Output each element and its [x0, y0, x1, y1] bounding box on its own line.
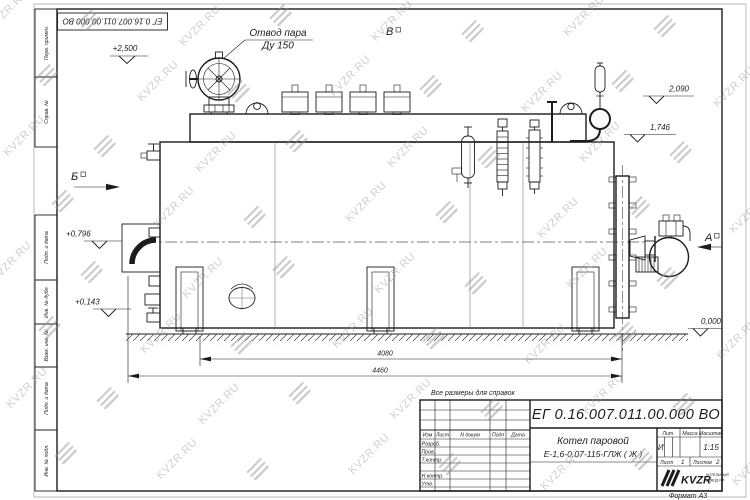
elevation-plus0143-label: +0,143: [75, 298, 100, 307]
lit-value: И: [658, 443, 664, 452]
margin-label-inv-podl: Инв. № подл.: [44, 444, 50, 476]
row-nkontr: Н.контр.: [422, 474, 444, 480]
view-a-label: А: [704, 232, 712, 244]
product-name: Котел паровой: [557, 436, 629, 447]
steam-note-line2: Ду 150: [261, 41, 294, 52]
mass-label: Масса: [682, 431, 697, 437]
elevation-plus0796-label: +0,796: [66, 230, 91, 239]
rear-flange-plate: [609, 165, 636, 352]
col-izm: Изм: [423, 433, 433, 439]
view-labels: Б В А: [71, 26, 722, 250]
elevation-2090-label: 2,090: [668, 85, 690, 94]
drawing-sheet: Перв. примен. Справ. № Подп. и дата Инв.…: [0, 0, 750, 500]
margin-label-vzam-inv: Взам. инв. №: [44, 329, 50, 361]
row-prov: Пров.: [422, 450, 436, 456]
safety-valves: [282, 85, 410, 115]
steam-note-line1: Отвод пара: [249, 28, 307, 39]
steam-outlet-note: Отвод пара Ду 150: [224, 28, 313, 58]
fan: [630, 215, 690, 277]
sheets-label: Листов: [692, 460, 712, 466]
lit-label: Лит.: [661, 431, 674, 437]
row-utv: Утв.: [422, 482, 434, 488]
reference-note: Все размеры для справок: [431, 389, 516, 397]
title-block: Все размеры для справок Изм Лист N докум…: [420, 389, 729, 500]
top-stamp-number: ЕГ 0.16.007.011.00.000 ВО: [62, 17, 162, 27]
support-legs: [176, 267, 599, 334]
manometer: [570, 63, 610, 141]
view-b-label: Б: [71, 171, 78, 183]
row-tkontr: Т.контр.: [422, 458, 443, 464]
col-list: Лист: [435, 433, 450, 439]
elevation-plus2500-label: +2,500: [113, 44, 138, 53]
col-podp: Подп: [492, 433, 505, 439]
top-stamp: ЕГ 0.16.007.011.00.000 ВО: [58, 13, 168, 30]
frame: [34, 4, 746, 497]
row-razrab: Разраб.: [422, 442, 441, 448]
view-v-label: В: [386, 26, 393, 38]
dim-4460-label: 4460: [372, 368, 388, 375]
manhole: [228, 284, 256, 310]
margin-column-labels: Перв. примен. Справ. № Подп. и дата Инв.…: [44, 26, 50, 477]
elevation-1746-label: 1,746: [650, 123, 671, 132]
dimensions: 4080 4460: [128, 276, 622, 383]
margin-label-perv-primen: Перв. примен.: [44, 26, 50, 60]
scale-value: 1:15: [703, 443, 719, 452]
ground: [126, 334, 688, 345]
water-gauges: [452, 119, 543, 196]
sheet-value: 1: [681, 459, 684, 466]
col-data: Дата: [510, 433, 525, 439]
doc-number: ЕГ 0.16.007.011.00.000 ВО: [532, 407, 720, 423]
steam-valve: [186, 52, 240, 114]
logo-caption-line2: ЗАВОД РФ: [706, 479, 724, 483]
sheet-label: Лист: [659, 460, 674, 466]
margin-label-podp-data-2: Подп. и дата: [44, 382, 50, 415]
dim-4080-label: 4080: [377, 351, 393, 358]
scale-label: Масштаб: [699, 431, 724, 437]
drawing-canvas: Перв. примен. Справ. № Подп. и дата Инв.…: [0, 0, 750, 500]
sheets-value: 2: [715, 459, 720, 466]
format-label: Формат А3: [669, 493, 707, 500]
margin-label-sprav-no: Справ. №: [44, 100, 50, 124]
margin-label-podp-data-1: Подп. и дата: [44, 231, 50, 264]
thermometer: [547, 102, 557, 142]
logo-caption-line1: КОТЕЛЬНЫЙ: [706, 473, 729, 477]
margin-label-inv-dubl: Инв. № дубл.: [44, 286, 50, 318]
col-ndoc: N докум: [460, 433, 480, 439]
kvzr-logo: KVZR КОТЕЛЬНЫЙ ЗАВОД РФ: [662, 470, 729, 487]
product-model: Е-1,6-0,07-115-ГЛЖ ( Ж ): [544, 449, 643, 459]
elevation-0000-label: 0,000: [701, 317, 722, 326]
